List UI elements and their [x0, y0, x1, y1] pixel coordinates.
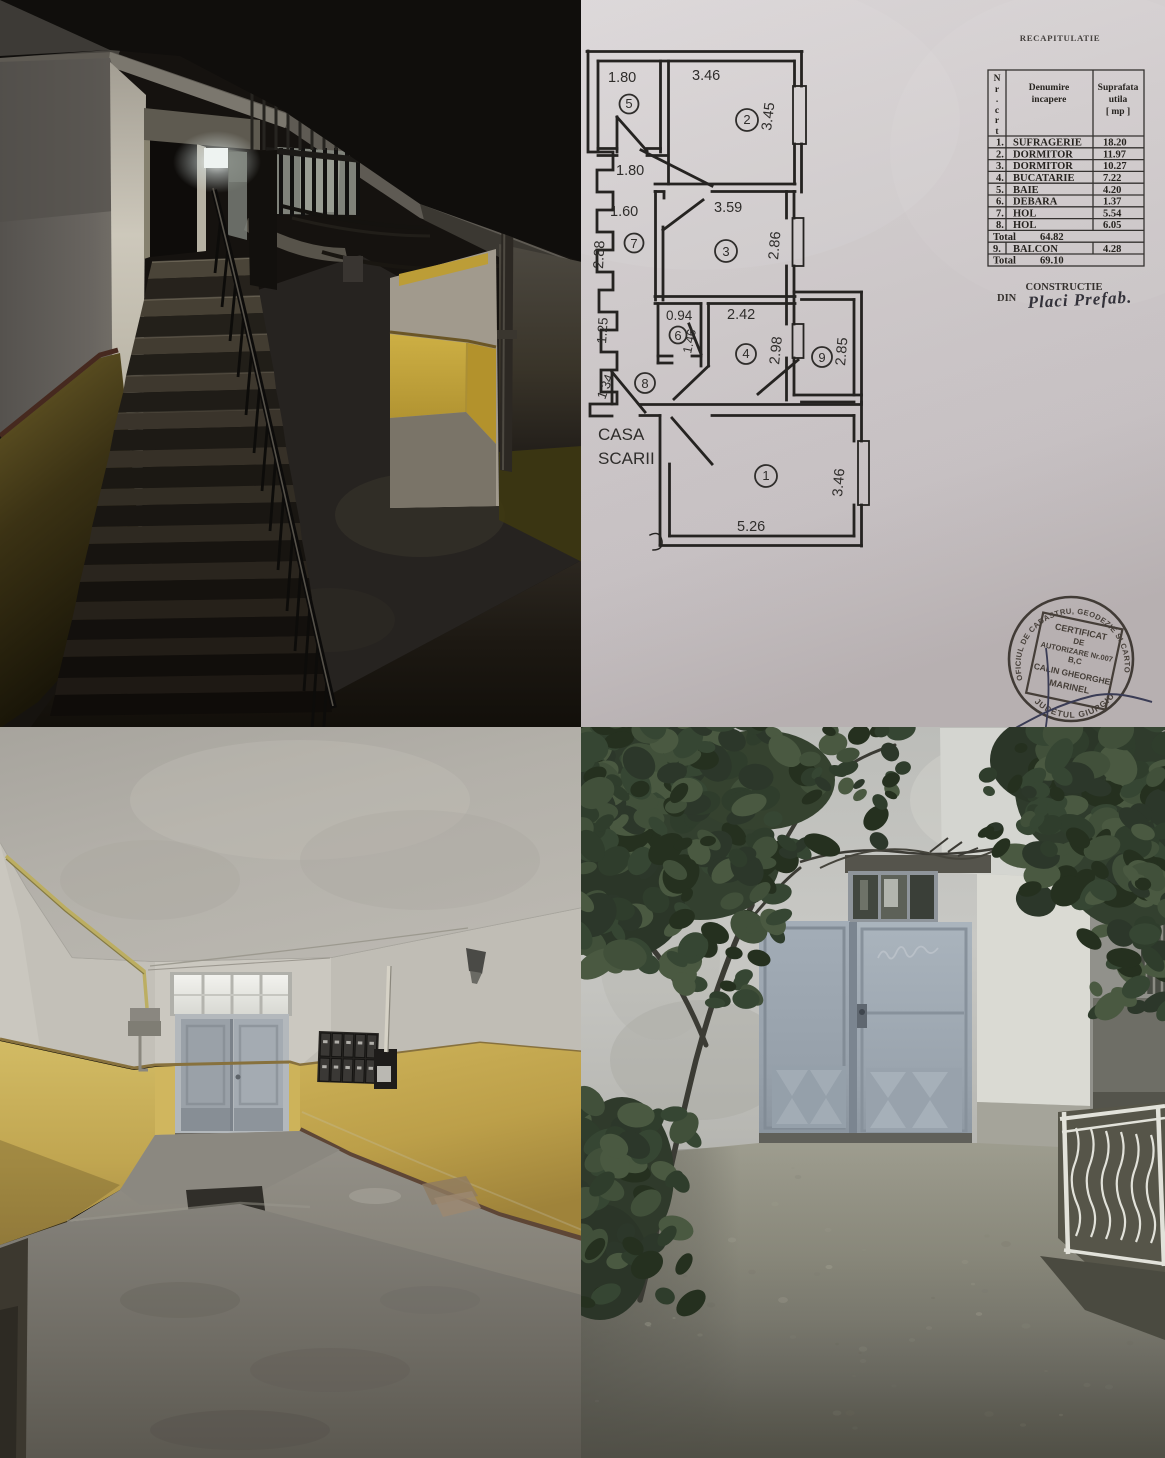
- svg-text:SUFRAGERIE: SUFRAGERIE: [1013, 138, 1082, 149]
- svg-text:1: 1: [762, 468, 769, 483]
- svg-text:4.28: 4.28: [1103, 244, 1121, 255]
- svg-text:DIN: DIN: [997, 293, 1017, 304]
- svg-text:CASA: CASA: [598, 425, 645, 444]
- svg-text:HOL: HOL: [1013, 220, 1036, 231]
- svg-text:7.: 7.: [996, 208, 1004, 219]
- svg-text:5.26: 5.26: [737, 519, 765, 535]
- svg-text:BAIE: BAIE: [1013, 185, 1039, 196]
- svg-text:1.: 1.: [996, 138, 1004, 149]
- svg-text:2.42: 2.42: [727, 307, 755, 323]
- svg-text:1.37: 1.37: [1103, 197, 1121, 208]
- svg-text:DORMITOR: DORMITOR: [1013, 149, 1073, 160]
- svg-text:2.: 2.: [996, 149, 1004, 160]
- svg-text:2.85: 2.85: [833, 337, 851, 367]
- svg-text:3: 3: [722, 244, 729, 259]
- svg-text:Total: Total: [993, 232, 1016, 243]
- svg-text:10.27: 10.27: [1103, 161, 1127, 172]
- svg-text:c: c: [995, 106, 999, 116]
- svg-text:9: 9: [818, 350, 825, 365]
- svg-text:1.80: 1.80: [616, 163, 644, 179]
- svg-text:7: 7: [630, 236, 637, 251]
- svg-text:DEBARA: DEBARA: [1013, 197, 1058, 208]
- svg-text:9.: 9.: [993, 244, 1001, 255]
- svg-text:2: 2: [743, 112, 750, 127]
- svg-text:2.88: 2.88: [591, 240, 608, 269]
- svg-text:2.86: 2.86: [766, 231, 784, 261]
- svg-text:69.10: 69.10: [1040, 256, 1064, 267]
- svg-text:0.94: 0.94: [666, 308, 693, 323]
- svg-text:Suprafata: Suprafata: [1098, 83, 1139, 93]
- svg-text:BALCON: BALCON: [1013, 244, 1058, 255]
- svg-text:3.46: 3.46: [830, 468, 848, 498]
- svg-text:3.46: 3.46: [692, 68, 720, 84]
- svg-text:[ mp ]: [ mp ]: [1106, 107, 1130, 117]
- svg-text:N: N: [994, 74, 1001, 84]
- svg-text:64.82: 64.82: [1040, 232, 1064, 243]
- svg-text:incapere: incapere: [1032, 95, 1067, 105]
- svg-text:1.25: 1.25: [594, 317, 611, 344]
- svg-text:1.80: 1.80: [608, 70, 636, 86]
- svg-text:8: 8: [641, 376, 648, 391]
- svg-text:8.: 8.: [996, 220, 1004, 231]
- svg-text:3.45: 3.45: [759, 102, 778, 132]
- svg-text:RECAPITULATIE: RECAPITULATIE: [1020, 33, 1100, 43]
- svg-text:1.60: 1.60: [610, 204, 638, 220]
- svg-text:5.: 5.: [996, 185, 1004, 196]
- svg-text:4: 4: [742, 346, 749, 361]
- svg-text:SCARII: SCARII: [598, 449, 655, 468]
- svg-text:2.98: 2.98: [767, 336, 786, 366]
- svg-text:3.: 3.: [996, 161, 1004, 172]
- svg-text:Denumire: Denumire: [1029, 83, 1069, 93]
- svg-text:DORMITOR: DORMITOR: [1013, 161, 1073, 172]
- svg-text:Total: Total: [993, 256, 1016, 267]
- svg-text:HOL: HOL: [1013, 208, 1036, 219]
- svg-text:6.: 6.: [996, 197, 1004, 208]
- svg-text:6.05: 6.05: [1103, 220, 1121, 231]
- svg-text:11.97: 11.97: [1103, 149, 1126, 160]
- svg-text:utila: utila: [1109, 95, 1128, 105]
- svg-text:3.59: 3.59: [714, 200, 742, 216]
- svg-text:18.20: 18.20: [1103, 138, 1127, 149]
- svg-text:6: 6: [674, 328, 681, 343]
- svg-text:4.: 4.: [996, 173, 1004, 184]
- svg-text:7.22: 7.22: [1103, 173, 1121, 184]
- svg-text:.: .: [996, 95, 998, 105]
- svg-text:5: 5: [625, 96, 632, 111]
- svg-text:5.54: 5.54: [1103, 208, 1122, 219]
- svg-text:4.20: 4.20: [1103, 185, 1121, 196]
- svg-text:BUCATARIE: BUCATARIE: [1013, 173, 1074, 184]
